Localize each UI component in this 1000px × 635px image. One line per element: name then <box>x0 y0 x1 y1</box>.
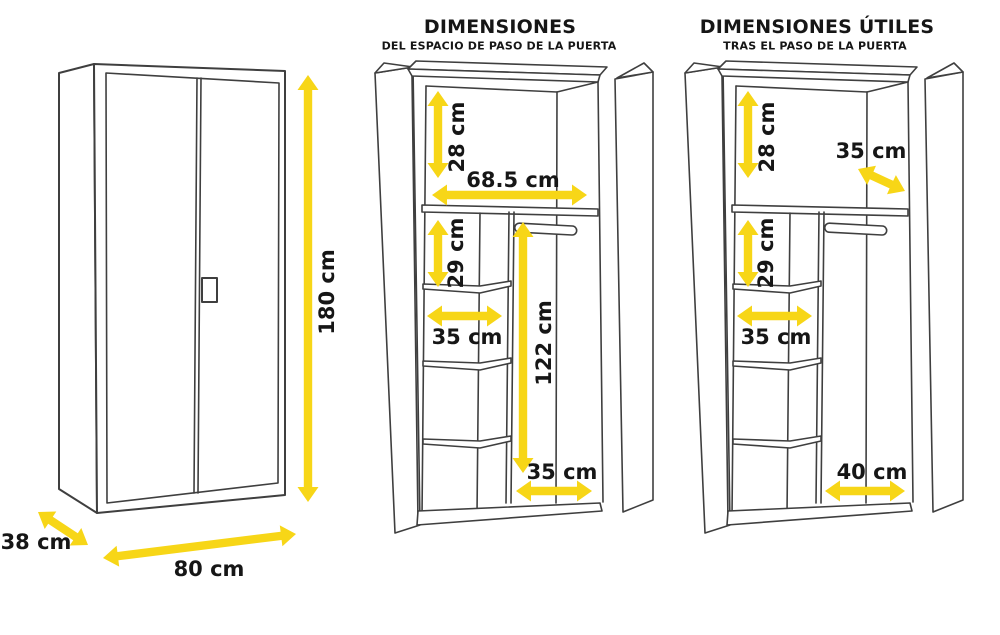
label-useful-28: 28 cm <box>755 102 779 173</box>
label-doorpass-29: 29 cm <box>444 218 468 289</box>
label-useful-35-shelf: 35 cm <box>741 325 812 349</box>
closed-side-panel <box>59 64 97 513</box>
arrow-hanging-height-122cm <box>513 222 534 473</box>
label-doorpass-122: 122 cm <box>532 300 556 385</box>
door-pass-wardrobe-drawing <box>370 55 680 555</box>
useful-wardrobe-drawing <box>680 55 990 555</box>
door-pass-subtitle: DEL ESPACIO DE PASO DE LA PUERTA <box>382 40 617 53</box>
label-useful-35-depth: 35 cm <box>836 139 907 163</box>
door-pass-title: DIMENSIONES <box>424 16 576 38</box>
label-depth-38: 38 cm <box>1 530 72 554</box>
label-doorpass-28: 28 cm <box>445 102 469 173</box>
label-height-180: 180 cm <box>315 249 339 334</box>
arrow-top-depth-35cm <box>858 166 905 194</box>
label-width-80: 80 cm <box>174 557 245 581</box>
label-doorpass-68-5: 68.5 cm <box>466 168 559 192</box>
closed-front-face <box>94 64 285 513</box>
label-useful-40: 40 cm <box>837 460 908 484</box>
label-doorpass-35-shelf: 35 cm <box>432 325 503 349</box>
arrow-shelf-width-35cm <box>427 306 502 327</box>
wardrobe-dimensions-diagram: DIMENSIONES DEL ESPACIO DE PASO DE LA PU… <box>0 0 1000 635</box>
useful-title: DIMENSIONES ÚTILES <box>700 16 935 38</box>
label-doorpass-35-bottom: 35 cm <box>527 460 598 484</box>
closed-wardrobe-drawing <box>20 50 360 590</box>
arrow-shelf-width-35cm <box>737 306 812 327</box>
label-useful-29: 29 cm <box>754 218 778 289</box>
useful-subtitle: TRAS EL PASO DE LA PUERTA <box>723 40 907 53</box>
